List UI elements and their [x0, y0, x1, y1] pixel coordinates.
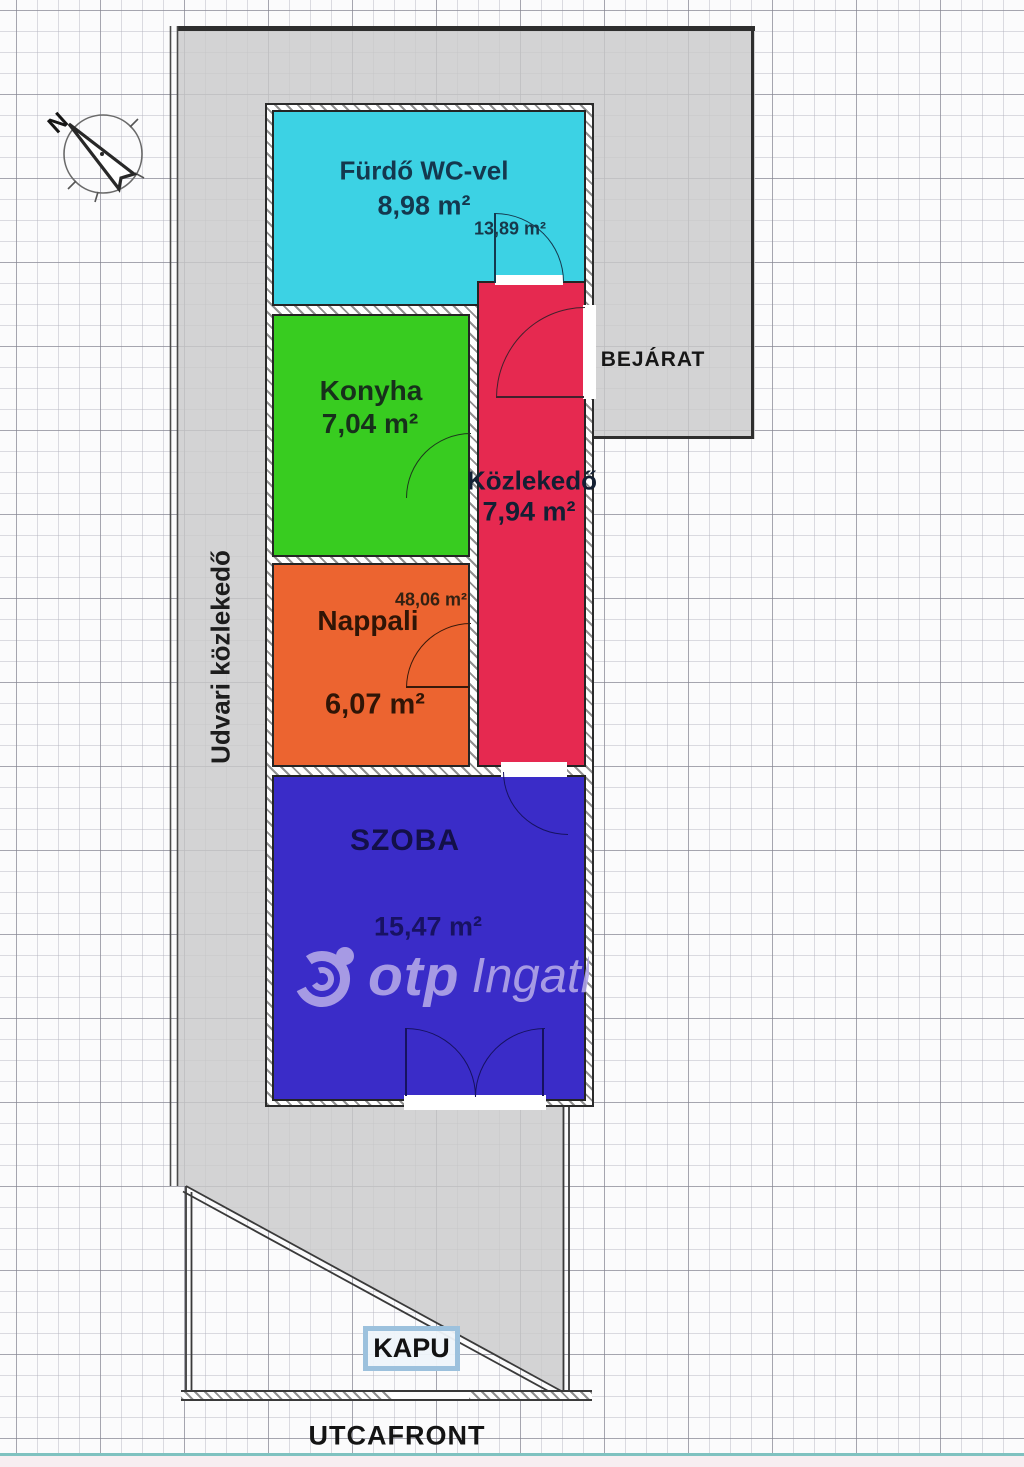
- kitchen-label: Konyha: [320, 375, 423, 407]
- double-door-leaf-left: [405, 1028, 407, 1096]
- compass-needle: [69, 124, 134, 189]
- street-boundary-wall: [181, 1390, 592, 1401]
- door-leaf-livingroom: [406, 686, 470, 688]
- bedroom-area: 15,47 m²: [374, 912, 482, 943]
- door-opening-bedroom-courtyard: [404, 1095, 546, 1110]
- compass-tick-sw: [68, 181, 76, 189]
- compass-tick-ne: [130, 119, 138, 127]
- entrance-label: BEJÁRAT: [601, 348, 706, 372]
- gate-opening: [392, 1392, 469, 1399]
- bathroom-area: 8,98 m²: [377, 191, 470, 222]
- hallway-area: 7,94 m²: [482, 497, 575, 528]
- courtyard-corridor-label: Udvari közlekedő: [206, 550, 237, 764]
- livingroom-area: 6,07 m²: [325, 689, 425, 722]
- door-leaf-entrance: [496, 396, 584, 398]
- bathroom-note-area: 13,89 m²: [474, 219, 546, 240]
- livingroom-note-area: 48,06 m²: [395, 590, 467, 611]
- street-front-label: UTCAFRONT: [309, 1421, 486, 1452]
- hallway-label: Közlekedő: [467, 466, 597, 497]
- floorplan-page: Fürdő WC-vel 8,98 m² 13,89 m² Konyha 7,0…: [0, 0, 1024, 1467]
- kitchen-area: 7,04 m²: [322, 408, 419, 440]
- gate-label-box: KAPU: [363, 1326, 460, 1371]
- compass-tick-s: [95, 192, 98, 202]
- bathroom-label: Fürdő WC-vel: [340, 156, 509, 187]
- compass-center-dot: [100, 152, 104, 156]
- gate-label: KAPU: [373, 1333, 450, 1364]
- bottom-edge-strip: [0, 1456, 1024, 1467]
- double-door-leaf-right: [542, 1028, 544, 1096]
- bedroom-label: SZOBA: [350, 824, 460, 858]
- compass-icon: N: [42, 98, 164, 216]
